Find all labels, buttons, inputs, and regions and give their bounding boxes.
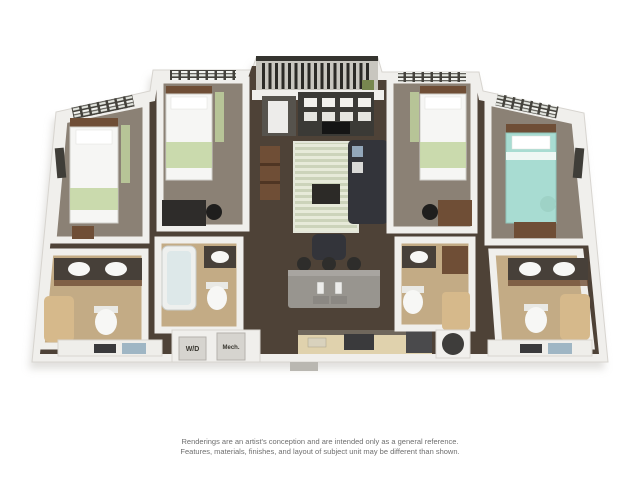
- headboard: [70, 118, 118, 127]
- bathroom-3-cabinet: [442, 246, 468, 274]
- counter-mat: [548, 343, 572, 354]
- kitchen-sink: [308, 338, 326, 347]
- fridge: [406, 330, 432, 353]
- bedroom-2-curtain: [215, 92, 224, 142]
- disclaimer-line1: Renderings are an artist's conception an…: [0, 437, 640, 447]
- utility-closets: W/D Mech.: [172, 330, 260, 362]
- bedroom-1-curtain: [121, 125, 130, 183]
- counter-appliance: [94, 344, 116, 353]
- bar-stool: [297, 257, 311, 271]
- headboard: [420, 86, 466, 94]
- bedroom-1: [53, 95, 146, 240]
- blanket: [70, 188, 118, 210]
- bathroom-1: [41, 252, 145, 346]
- sofa: [348, 140, 388, 224]
- water-heater-closet: [436, 330, 470, 358]
- pillow: [512, 136, 550, 149]
- bedroom-4-desk-chair: [540, 196, 556, 212]
- shelf-item: [304, 112, 317, 121]
- tv-screen: [322, 122, 350, 134]
- bedroom-3-desk: [438, 200, 472, 226]
- pillow: [171, 97, 207, 109]
- disclaimer: Renderings are an artist's conception an…: [0, 437, 640, 456]
- shelf-item: [358, 112, 371, 121]
- water-heater: [442, 333, 464, 355]
- floor-plan-page: W/D Mech.: [0, 0, 640, 480]
- left-bottom-counter: [58, 340, 162, 356]
- bedroom-3-window: [398, 72, 466, 82]
- bedroom-2: [160, 70, 246, 228]
- bathroom-1-vanity: [54, 258, 142, 280]
- bedroom-1-bed: [70, 118, 118, 223]
- counter-appliance: [520, 344, 542, 353]
- island-sink: [331, 296, 347, 304]
- sofa-pillow-white: [352, 162, 363, 173]
- balcony-rail-cap: [256, 56, 378, 61]
- shelf-item: [322, 98, 335, 107]
- bar-stool: [347, 257, 361, 271]
- shelf-item: [358, 98, 371, 107]
- sheet-fold: [506, 152, 556, 160]
- shelf-item: [340, 112, 353, 121]
- balcony-planter: [362, 80, 374, 90]
- pillow: [425, 97, 461, 109]
- bedroom-2-window: [170, 70, 236, 80]
- shelf-item: [304, 98, 317, 107]
- bedroom-4-desk: [514, 222, 556, 238]
- bedroom-3-desk-chair: [422, 204, 438, 220]
- bathroom-4: [492, 252, 591, 346]
- bedroom-2-desk-chair: [206, 204, 222, 220]
- island-edge: [288, 270, 380, 276]
- island-faucet: [335, 282, 342, 294]
- bathroom-3-sink: [410, 251, 428, 263]
- bookshelf-shelf: [260, 163, 280, 166]
- bedroom-3-bed: [420, 86, 466, 180]
- bathroom-1-sink-left: [68, 262, 90, 276]
- bar-stool: [322, 257, 336, 271]
- entry-step: [290, 362, 318, 371]
- bedroom-3: [390, 72, 474, 230]
- blanket: [166, 142, 212, 168]
- headboard: [166, 86, 212, 94]
- bathroom-4-vanity-base: [508, 280, 588, 286]
- mech-label: Mech.: [222, 345, 239, 351]
- balcony: [256, 56, 378, 94]
- entry-door: [262, 96, 296, 136]
- disclaimer-line2: Features, materials, finishes, and layou…: [0, 447, 640, 457]
- bathroom-1-shower-curtain: [44, 296, 74, 342]
- bathroom-4-shower-curtain: [560, 294, 590, 340]
- shelf-item: [340, 98, 353, 107]
- bathroom-2-sink: [211, 251, 229, 263]
- bathroom-1-sink-right: [105, 262, 127, 276]
- island-sink: [313, 296, 329, 304]
- shelf-item: [322, 112, 335, 121]
- bookshelf: [260, 146, 280, 200]
- right-bottom-counter: [488, 340, 592, 356]
- bathroom-3: [398, 240, 472, 330]
- washer-dryer-label: W/D: [186, 346, 200, 353]
- coffee-table: [312, 184, 340, 204]
- island-faucet: [317, 282, 324, 294]
- door-panel: [268, 101, 288, 133]
- toilet-bowl: [403, 290, 423, 314]
- bookshelf-shelf: [260, 181, 280, 184]
- bathroom-1-vanity-base: [54, 280, 142, 286]
- counter-mat: [122, 343, 146, 354]
- bathroom-4-sink-right: [553, 262, 575, 276]
- bathroom-2-tub: [162, 246, 196, 310]
- stove: [344, 334, 374, 350]
- tub-inner: [167, 251, 191, 305]
- bedroom-1-nightstand: [72, 226, 94, 239]
- sofa-pillow-blue: [352, 146, 363, 157]
- floor-plan-rendering: W/D Mech.: [0, 0, 640, 480]
- toilet-bowl: [95, 309, 117, 335]
- media-wall: [298, 92, 374, 136]
- bedroom-2-desk: [162, 200, 206, 226]
- headboard: [506, 124, 556, 133]
- toilet-bowl: [525, 307, 547, 333]
- armchair: [312, 234, 346, 260]
- toilet-bowl: [207, 286, 227, 310]
- bathroom-2: [158, 240, 240, 330]
- blanket: [420, 142, 466, 168]
- bedroom-2-bed: [166, 86, 212, 180]
- bedroom-3-curtain: [410, 92, 419, 142]
- bathroom-3-shower-curtain: [442, 292, 470, 330]
- bathroom-4-sink-left: [519, 262, 541, 276]
- pillow: [76, 130, 112, 144]
